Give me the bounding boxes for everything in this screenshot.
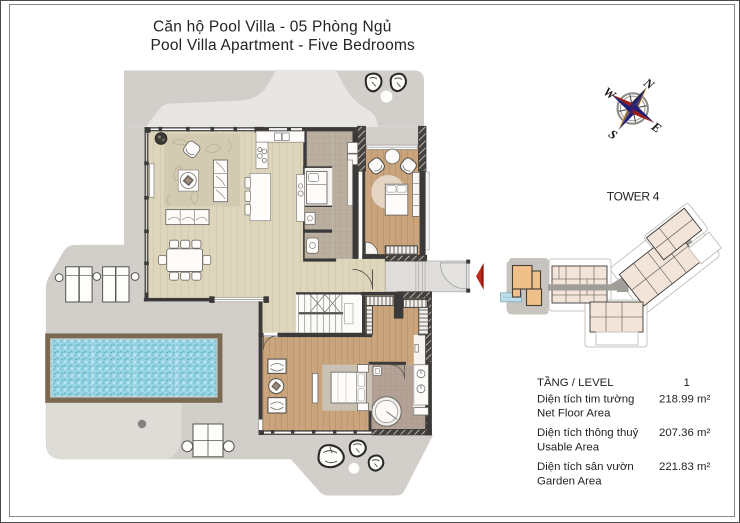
svg-text:TOWER 4: TOWER 4 bbox=[607, 190, 660, 204]
svg-text:W: W bbox=[601, 85, 620, 104]
svg-text:Garden Area: Garden Area bbox=[537, 475, 602, 487]
svg-text:S: S bbox=[606, 127, 620, 143]
svg-text:Net Floor Area: Net Floor Area bbox=[537, 408, 611, 420]
svg-text:TẦNG / LEVEL: TẦNG / LEVEL bbox=[537, 376, 614, 389]
svg-text:Diện tích sân vườn: Diện tích sân vườn bbox=[537, 461, 634, 473]
svg-text:N: N bbox=[640, 75, 657, 93]
svg-text:E: E bbox=[648, 119, 664, 136]
svg-text:218.99 m²: 218.99 m² bbox=[659, 393, 710, 405]
svg-text:Pool Villa Apartment - Five Be: Pool Villa Apartment - Five Bedrooms bbox=[151, 37, 416, 54]
svg-text:221.83 m²: 221.83 m² bbox=[659, 461, 710, 473]
svg-text:Usable Area: Usable Area bbox=[537, 441, 600, 453]
svg-text:Diện tích thông thuỷ: Diện tích thông thuỷ bbox=[537, 427, 639, 439]
svg-text:Diện tích tim tường: Diện tích tim tường bbox=[537, 393, 634, 405]
svg-text:207.36 m²: 207.36 m² bbox=[659, 427, 710, 439]
svg-text:1: 1 bbox=[684, 377, 690, 389]
svg-text:Căn hộ Pool Villa - 05 Phòng N: Căn hộ Pool Villa - 05 Phòng Ngủ bbox=[153, 19, 392, 36]
